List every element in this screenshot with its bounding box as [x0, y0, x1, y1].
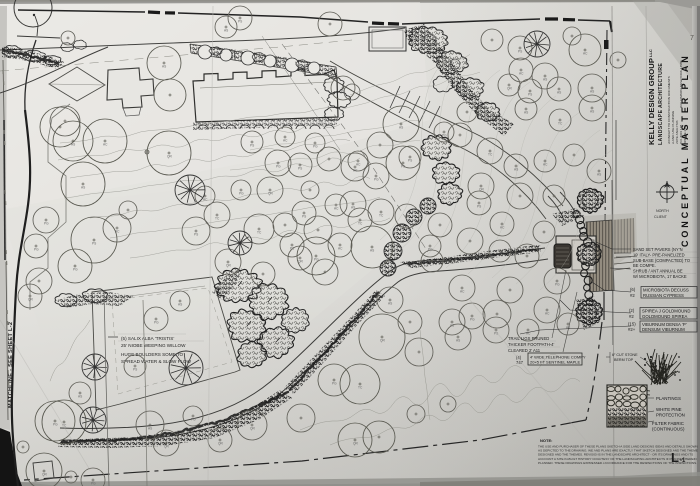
svg-text:TRAIL LIGS PRUNED: TRAIL LIGS PRUNED	[508, 336, 549, 341]
svg-text:AC: AC	[500, 226, 505, 230]
svg-text:AC: AC	[545, 312, 550, 316]
svg-text:SUB-BASE (COMPACTED) TO: SUB-BASE (COMPACTED) TO	[633, 258, 690, 263]
svg-text:PS: PS	[401, 165, 405, 169]
svg-text:PLANTINGS: PLANTINGS	[656, 396, 681, 401]
svg-text:PROTECTION: PROTECTION	[656, 413, 685, 418]
svg-text:#2+: #2+	[628, 327, 636, 332]
svg-text:PS: PS	[408, 159, 412, 163]
svg-text:PS: PS	[528, 93, 532, 97]
svg-text:PG: PG	[191, 418, 196, 422]
svg-text:-1: -1	[680, 458, 686, 464]
svg-text:PG: PG	[374, 178, 379, 182]
svg-text:6″ CUT STONE: 6″ CUT STONE	[612, 353, 638, 357]
svg-text:AS: AS	[590, 110, 594, 114]
svg-text:AC: AC	[519, 72, 524, 76]
svg-text:AS: AS	[590, 90, 594, 94]
svg-text:PG: PG	[34, 248, 39, 252]
svg-text:PS: PS	[238, 20, 242, 24]
svg-text:AS: AS	[178, 303, 182, 307]
svg-text:AS: AS	[370, 249, 374, 253]
svg-text:WHITE PINE: WHITE PINE	[656, 407, 682, 412]
svg-text:(15): (15)	[628, 322, 636, 327]
svg-text:AS: AS	[514, 168, 518, 172]
svg-text:AS: AS	[543, 78, 547, 82]
svg-text:PG: PG	[470, 318, 475, 322]
svg-text:AC: AC	[334, 207, 339, 211]
svg-text:SAND SET PAVERS (NY’N: SAND SET PAVERS (NY’N	[633, 247, 683, 252]
svg-text:(6): (6)	[630, 287, 636, 292]
svg-text:#2: #2	[630, 293, 635, 298]
svg-text:(2): (2)	[629, 308, 635, 313]
svg-text:BERM TOP: BERM TOP	[614, 358, 634, 362]
svg-text:QR: QR	[250, 427, 255, 431]
svg-text:W/ MICROBIOTA, 17 BACKE: W/ MICROBIOTA, 17 BACKE	[633, 274, 687, 279]
svg-text:PS: PS	[250, 144, 254, 148]
svg-text:KELLY DESIGN GROUP: KELLY DESIGN GROUP	[647, 58, 656, 145]
svg-text:QR: QR	[298, 260, 303, 264]
svg-text:AS: AS	[148, 427, 152, 431]
svg-text:LANDSCAPE ARCHITECTURE: LANDSCAPE ARCHITECTURE	[658, 63, 664, 145]
svg-text:AC: AC	[543, 163, 548, 167]
svg-text:PG: PG	[555, 283, 560, 287]
svg-text:AC: AC	[283, 139, 288, 143]
svg-text:25′ NIOBE WEEPING WILLOW: 25′ NIOBE WEEPING WILLOW	[121, 343, 186, 348]
svg-text:GOLDMOUND SPIREA: GOLDMOUND SPIREA	[642, 314, 687, 319]
svg-text:PG: PG	[73, 268, 78, 272]
svg-text:BE COMPE.: BE COMPE.	[633, 263, 656, 268]
svg-text:#2: #2	[629, 314, 634, 319]
svg-text:AC: AC	[115, 230, 120, 234]
svg-text:PG: PG	[239, 192, 244, 196]
svg-text:L: L	[671, 450, 679, 465]
svg-text:QR: QR	[380, 339, 385, 343]
svg-text:NORTH: NORTH	[656, 209, 669, 213]
svg-text:PG: PG	[44, 222, 49, 226]
svg-text:PS: PS	[477, 205, 481, 209]
svg-text:20×5 FT SENTINEL MAPLE: 20×5 FT SENTINEL MAPLE	[530, 360, 580, 365]
svg-text:PG: PG	[154, 321, 159, 325]
svg-text:QR: QR	[28, 298, 33, 302]
svg-text:AS: AS	[524, 111, 528, 115]
svg-text:QR: QR	[218, 442, 223, 446]
svg-text:FILTER FABRIC: FILTER FABRIC	[652, 421, 684, 426]
svg-text:QR: QR	[226, 264, 231, 268]
svg-text:PS: PS	[341, 90, 345, 94]
svg-text:THICKER FOOTPATH-4′: THICKER FOOTPATH-4′	[508, 342, 554, 347]
svg-text:AS: AS	[388, 302, 392, 306]
svg-text:(CONTINUOUS): (CONTINUOUS)	[652, 427, 685, 432]
svg-text:PG: PG	[276, 165, 281, 169]
svg-text:PG: PG	[91, 482, 96, 486]
svg-text:AS: AS	[597, 173, 601, 177]
svg-text:TC: TC	[558, 122, 563, 126]
svg-text:AS: AS	[81, 186, 85, 190]
svg-text:QR: QR	[268, 192, 273, 196]
svg-text:AC: AC	[583, 52, 588, 56]
svg-text:PS: PS	[194, 233, 198, 237]
svg-text:TC: TC	[358, 386, 363, 390]
svg-text:PS: PS	[298, 167, 302, 171]
svg-text:CONCEPTUAL MASTER PLAN: CONCEPTUAL MASTER PLAN	[680, 53, 690, 247]
svg-text:AS: AS	[399, 126, 403, 130]
svg-text:AC: AC	[338, 247, 343, 251]
svg-text:QR: QR	[167, 155, 172, 159]
svg-text:AC: AC	[353, 169, 358, 173]
svg-text:AS: AS	[456, 339, 460, 343]
svg-text:AC: AC	[103, 143, 108, 147]
svg-text:PG: PG	[332, 382, 337, 386]
svg-text:QR: QR	[164, 445, 169, 449]
svg-text:PG: PG	[313, 145, 318, 149]
svg-text:TC: TC	[257, 231, 262, 235]
svg-text:TC: TC	[488, 153, 493, 157]
svg-text:AS: AS	[78, 395, 82, 399]
svg-text:QR: QR	[353, 442, 358, 446]
svg-text:PG: PG	[53, 423, 58, 427]
svg-text:AS: AS	[162, 65, 166, 69]
svg-text:RUSSIAN CYPRESS: RUSSIAN CYPRESS	[643, 293, 684, 298]
svg-text:SHRUB / ANT ANNUAL BE: SHRUB / ANT ANNUAL BE	[633, 269, 683, 274]
svg-text:LLC: LLC	[648, 49, 653, 57]
svg-text:DENSUM VIBURNUM: DENSUM VIBURNUM	[642, 327, 685, 332]
svg-text:TC: TC	[215, 217, 220, 221]
svg-text:TC: TC	[498, 253, 503, 257]
svg-text:AS: AS	[557, 91, 561, 95]
svg-text:SPIREA J GOLDMOUND: SPIREA J GOLDMOUND	[642, 309, 690, 314]
svg-text:(5) SALIX ALBA ‘TRISTIS’: (5) SALIX ALBA ‘TRISTIS’	[121, 336, 174, 341]
svg-text:CLIENT: CLIENT	[654, 215, 668, 219]
svg-text:MICROBIOTA DECUSS: MICROBIOTA DECUSS	[643, 288, 689, 293]
svg-text:QR: QR	[42, 473, 47, 477]
svg-text:AS: AS	[71, 143, 75, 147]
svg-text:AC: AC	[356, 163, 361, 167]
svg-text:19′ ITALY- PRE-PANELIZED: 19′ ITALY- PRE-PANELIZED	[633, 252, 685, 257]
svg-text:AC: AC	[203, 198, 208, 202]
svg-text:PS: PS	[518, 50, 522, 54]
svg-text:TC: TC	[358, 222, 363, 226]
svg-text:AC: AC	[460, 290, 465, 294]
svg-text:7: 7	[690, 35, 694, 42]
svg-text:PG: PG	[314, 258, 319, 262]
svg-text:PG: PG	[442, 134, 447, 138]
svg-text:PG: PG	[428, 248, 433, 252]
svg-text:QR: QR	[507, 87, 512, 91]
svg-text:PS: PS	[302, 215, 306, 219]
svg-text:PS: PS	[92, 242, 96, 246]
svg-text:PS: PS	[133, 368, 137, 372]
svg-text:AS: AS	[224, 29, 228, 33]
svg-text:NOTE:: NOTE:	[540, 438, 552, 443]
svg-text:TC: TC	[379, 214, 384, 218]
